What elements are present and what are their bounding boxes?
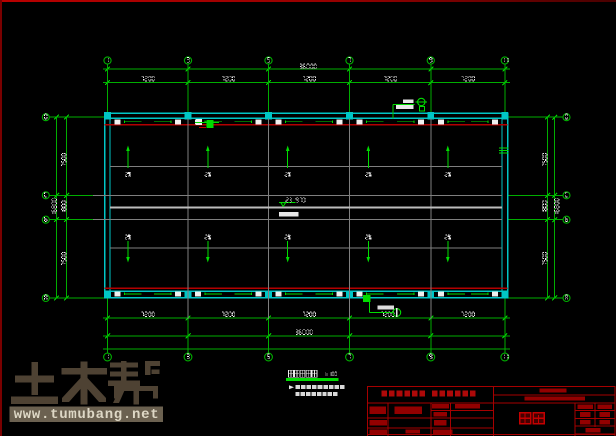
svg-text:www.tumubang.net: www.tumubang.net bbox=[14, 407, 160, 423]
